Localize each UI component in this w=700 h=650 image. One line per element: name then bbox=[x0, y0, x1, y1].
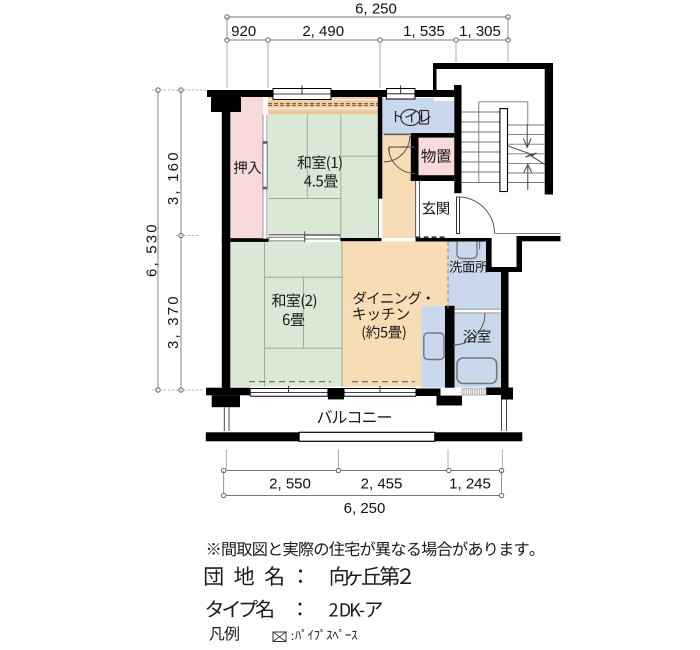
svg-text:2, 550: 2, 550 bbox=[269, 476, 311, 493]
svg-text:6, 250: 6, 250 bbox=[344, 500, 386, 517]
svg-text:6, 250: 6, 250 bbox=[355, 1, 397, 18]
svg-text:1, 305: 1, 305 bbox=[459, 23, 501, 40]
svg-text:1, 535: 1, 535 bbox=[403, 23, 445, 40]
svg-text:2, 490: 2, 490 bbox=[302, 23, 344, 40]
svg-text:2, 455: 2, 455 bbox=[361, 476, 403, 493]
svg-text:3, 160: 3, 160 bbox=[165, 150, 182, 205]
svg-text:6, 530: 6, 530 bbox=[144, 222, 161, 277]
svg-text:3, 370: 3, 370 bbox=[165, 294, 182, 349]
svg-text:920: 920 bbox=[231, 23, 256, 40]
svg-text:1, 245: 1, 245 bbox=[449, 476, 491, 493]
